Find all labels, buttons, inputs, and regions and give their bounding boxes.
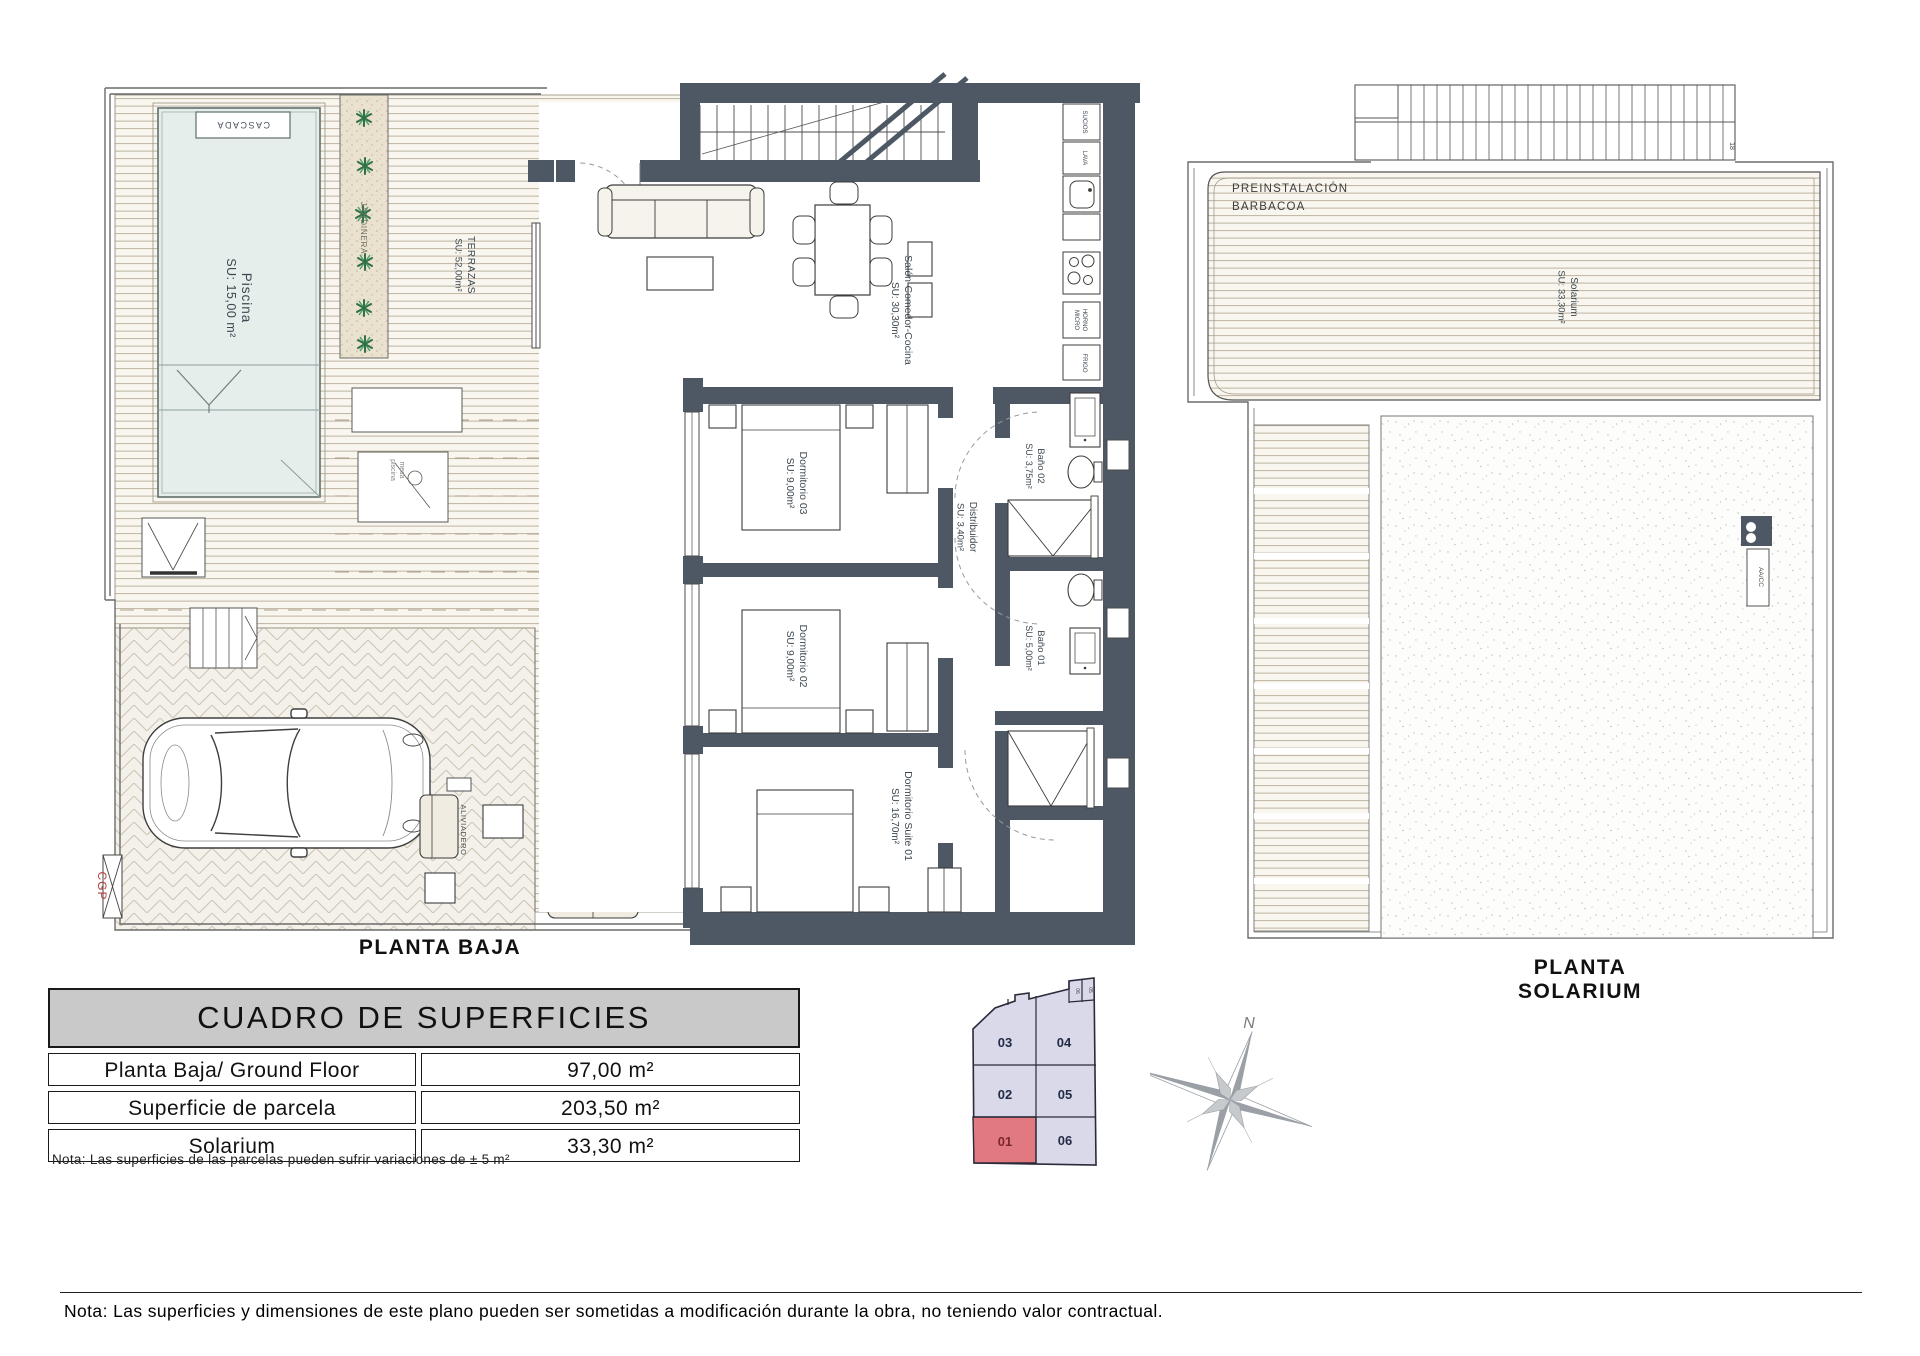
planta-baja-caption: PLANTA BAJA [335,936,545,960]
svg-text:05: 05 [1087,987,1093,993]
compass-north-label: N [1243,1015,1255,1032]
compass-star [1150,1001,1334,1197]
cascada-label: CASCADA [216,120,270,130]
car [143,709,430,857]
row-value: 203,50 m² [421,1091,800,1124]
compass: N [1150,988,1340,1203]
svg-text:mesa: mesa [398,461,405,478]
cgp-box: CGP [95,855,122,918]
svg-text:ALIVIADERO: ALIVIADERO [459,804,468,855]
svg-text:SU: 3,40m²: SU: 3,40m² [955,503,966,551]
svg-text:Baño 01: Baño 01 [1035,630,1046,665]
louver-strip [1254,425,1369,931]
svg-text:Piscina: Piscina [239,273,254,324]
solarium-label: Solarium SU: 33,30m² [1556,270,1580,323]
svg-text:SU: 16,70m²: SU: 16,70m² [889,788,900,845]
svg-text:SU: 5,00m²: SU: 5,00m² [1024,625,1034,671]
svg-text:SU: 52,00m²: SU: 52,00m² [453,238,464,291]
svg-text:MICRO: MICRO [1073,310,1079,330]
svg-text:06: 06 [1074,988,1080,994]
barbacoa-label-2: BARBACOA [1232,201,1306,213]
svg-text:03: 03 [998,1035,1012,1050]
row-label: Planta Baja/ Ground Floor [48,1053,416,1086]
solarium-drawing: 18 PREINSTALACIÓN BARBACOA Solarium SU: … [1185,80,1840,980]
row-value: 97,00 m² [421,1053,800,1086]
svg-text:Salón-Comedor-Cocina: Salón-Comedor-Cocina [902,255,914,365]
footer-note: Nota: Las superficies y dimensiones de e… [64,1301,1163,1322]
row-label: Superficie de parcela [48,1091,416,1124]
gravel-area [1381,416,1813,938]
pool: CASCADA Piscina SU: 15,00 m² [153,103,325,502]
svg-text:01: 01 [998,1134,1012,1149]
svg-text:Solarium: Solarium [1568,277,1579,316]
planta-baja-drawing: CASCADA Piscina SU: 15,00 m² JARDINERA T… [95,68,1145,958]
svg-text:Distribuidor: Distribuidor [967,502,978,553]
svg-text:Dormitorio Suite 01: Dormitorio Suite 01 [902,771,914,861]
pergola: 18 [1355,85,1735,160]
table-row: Planta Baja/ Ground Floor 97,00 m² [48,1053,800,1086]
svg-text:SU: 15,00 m²: SU: 15,00 m² [224,258,238,338]
svg-text:Dormitorio 02: Dormitorio 02 [797,624,809,687]
svg-text:Baño 02: Baño 02 [1035,448,1046,483]
surface-table-title: CUADRO DE SUPERFICIES [48,988,800,1048]
cgp-label: CGP [95,871,109,900]
planta-solarium-caption: PLANTA SOLARIUM [1470,956,1690,1004]
svg-text:TERRAZAS: TERRAZAS [465,236,476,294]
svg-text:05: 05 [1058,1087,1072,1102]
svg-text:piscina: piscina [389,459,396,481]
svg-text:SU: 9,00m²: SU: 9,00m² [784,631,795,682]
barbacoa-label-1: PREINSTALACIÓN [1232,182,1348,195]
surface-table-note: Nota: Las superficies de las parcelas pu… [52,1152,510,1167]
svg-text:FRIGO: FRIGO [1081,354,1087,373]
svg-text:06: 06 [1058,1133,1072,1148]
pool-furniture [352,388,462,522]
solarium-deck: PREINSTALACIÓN BARBACOA Solarium SU: 33,… [1208,172,1820,400]
table-row: Superficie de parcela 203,50 m² [48,1091,800,1124]
svg-text:SU: 3,75m²: SU: 3,75m² [1024,443,1034,489]
svg-text:HORNO: HORNO [1081,309,1087,332]
svg-text:SUCIOS: SUCIOS [1081,110,1087,133]
svg-text:04: 04 [1057,1035,1072,1050]
planter: JARDINERA [340,95,388,358]
svg-text:SU: 9,00m²: SU: 9,00m² [784,458,795,509]
footer-rule [60,1292,1862,1293]
terrazas-label: TERRAZAS SU: 52,00m² [453,236,477,294]
aacc-label: AA/CC [1757,567,1764,587]
svg-text:SU: 33,30m²: SU: 33,30m² [1556,270,1567,323]
distribuidor-label: Distribuidor SU: 3,40m² [955,502,979,553]
pergola-corner-label: 18 [1728,142,1735,150]
svg-text:02: 02 [998,1087,1012,1102]
jardinera-label: JARDINERA [359,202,368,255]
svg-text:LAVA: LAVA [1081,151,1087,165]
svg-text:Dormitorio 03: Dormitorio 03 [797,451,809,514]
svg-text:SU: 30,30m²: SU: 30,30m² [889,282,900,339]
plan-sheet: CASCADA Piscina SU: 15,00 m² JARDINERA T… [0,0,1920,1356]
surface-table: CUADRO DE SUPERFICIES Planta Baja/ Groun… [48,988,800,1167]
